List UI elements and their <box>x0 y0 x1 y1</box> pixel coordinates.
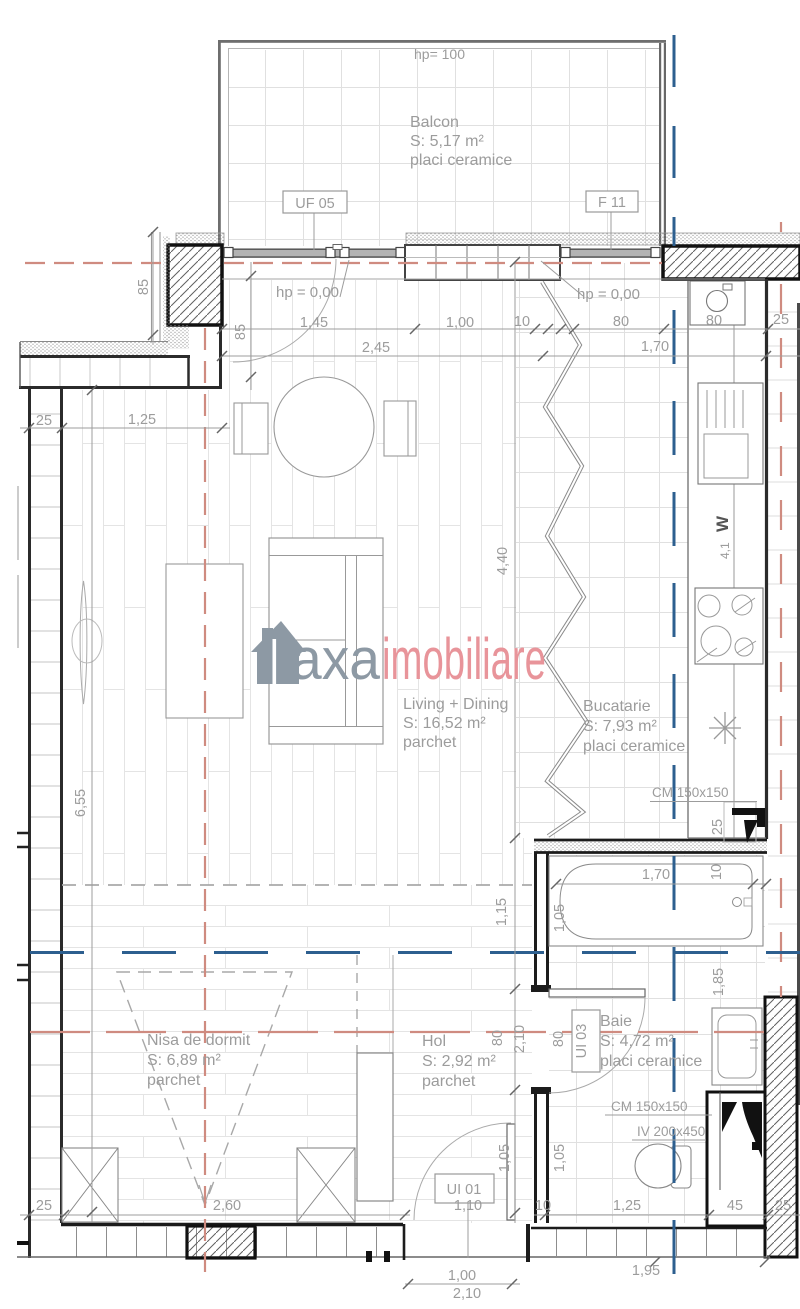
svg-text:Nisa de dormit: Nisa de dormit <box>147 1032 251 1049</box>
svg-text:10: 10 <box>709 864 725 880</box>
svg-text:placi ceramice: placi ceramice <box>600 1053 702 1070</box>
svg-text:placi ceramice: placi ceramice <box>410 152 512 169</box>
svg-text:S: 6,89 m²: S: 6,89 m² <box>147 1052 221 1069</box>
svg-text:25: 25 <box>775 1198 791 1214</box>
svg-text:1,95: 1,95 <box>632 1263 660 1279</box>
svg-text:IV 200x450: IV 200x450 <box>637 1124 705 1139</box>
svg-text:1,70: 1,70 <box>642 867 670 883</box>
svg-text:10: 10 <box>535 1198 551 1214</box>
svg-text:UF 05: UF 05 <box>295 196 335 212</box>
svg-text:80: 80 <box>706 313 722 329</box>
svg-text:W: W <box>713 515 732 532</box>
svg-text:25: 25 <box>773 312 789 328</box>
svg-text:1,00: 1,00 <box>448 1268 476 1284</box>
svg-text:UI 03: UI 03 <box>574 1024 590 1059</box>
svg-text:parchet: parchet <box>147 1072 201 1089</box>
svg-text:Living + Dining: Living + Dining <box>403 696 508 713</box>
svg-text:CM 150x150: CM 150x150 <box>652 785 729 800</box>
svg-text:25: 25 <box>36 413 52 429</box>
svg-text:1,15: 1,15 <box>494 898 510 926</box>
svg-text:parchet: parchet <box>422 1073 476 1090</box>
svg-text:1,05: 1,05 <box>497 1144 513 1172</box>
svg-text:4,1: 4,1 <box>718 542 732 559</box>
svg-text:axa: axa <box>291 627 381 692</box>
svg-text:S: 5,17 m²: S: 5,17 m² <box>410 133 484 150</box>
svg-text:2,45: 2,45 <box>362 340 390 356</box>
svg-text:80: 80 <box>551 1031 567 1047</box>
svg-text:45: 45 <box>727 1198 743 1214</box>
svg-text:S: 16,52 m²: S: 16,52 m² <box>403 715 486 732</box>
svg-text:4,40: 4,40 <box>495 547 511 575</box>
svg-text:1,10: 1,10 <box>454 1198 482 1214</box>
svg-text:1,25: 1,25 <box>128 412 156 428</box>
svg-text:parchet: parchet <box>403 734 457 751</box>
svg-text:hp= 100: hp= 100 <box>414 46 465 62</box>
svg-text:2,10: 2,10 <box>453 1286 481 1302</box>
svg-text:1,05: 1,05 <box>552 904 568 932</box>
svg-text:2,60: 2,60 <box>213 1198 241 1214</box>
svg-text:1,85: 1,85 <box>711 968 727 996</box>
svg-text:10: 10 <box>514 314 530 330</box>
svg-text:S: 7,93 m²: S: 7,93 m² <box>583 718 657 735</box>
svg-text:imobiliare: imobiliare <box>382 627 546 692</box>
svg-text:S: 2,92 m²: S: 2,92 m² <box>422 1053 496 1070</box>
svg-text:CM 150x150: CM 150x150 <box>611 1099 688 1114</box>
svg-text:hp = 0,00: hp = 0,00 <box>577 286 640 303</box>
svg-text:1,00: 1,00 <box>446 315 474 331</box>
svg-text:1,25: 1,25 <box>613 1198 641 1214</box>
svg-text:UI 01: UI 01 <box>447 1182 482 1198</box>
svg-text:85: 85 <box>136 279 152 295</box>
svg-text:1,05: 1,05 <box>552 1144 568 1172</box>
svg-text:6,55: 6,55 <box>73 789 89 817</box>
svg-text:2,10: 2,10 <box>512 1025 528 1053</box>
svg-text:placi ceramice: placi ceramice <box>583 738 685 755</box>
svg-text:Baie: Baie <box>600 1013 632 1030</box>
svg-text:Bucatarie: Bucatarie <box>583 698 651 715</box>
svg-text:25: 25 <box>710 819 726 835</box>
svg-text:F 11: F 11 <box>598 195 626 211</box>
svg-text:25: 25 <box>36 1198 52 1214</box>
svg-text:1,45: 1,45 <box>300 315 328 331</box>
svg-text:Balcon: Balcon <box>410 114 459 131</box>
svg-text:80: 80 <box>490 1030 506 1046</box>
svg-text:S: 4,72 m²: S: 4,72 m² <box>600 1033 674 1050</box>
svg-text:hp = 0,00: hp = 0,00 <box>276 284 339 301</box>
svg-text:80: 80 <box>613 314 629 330</box>
svg-text:85: 85 <box>233 324 249 340</box>
svg-text:Hol: Hol <box>422 1033 446 1050</box>
svg-text:1,70: 1,70 <box>641 339 669 355</box>
